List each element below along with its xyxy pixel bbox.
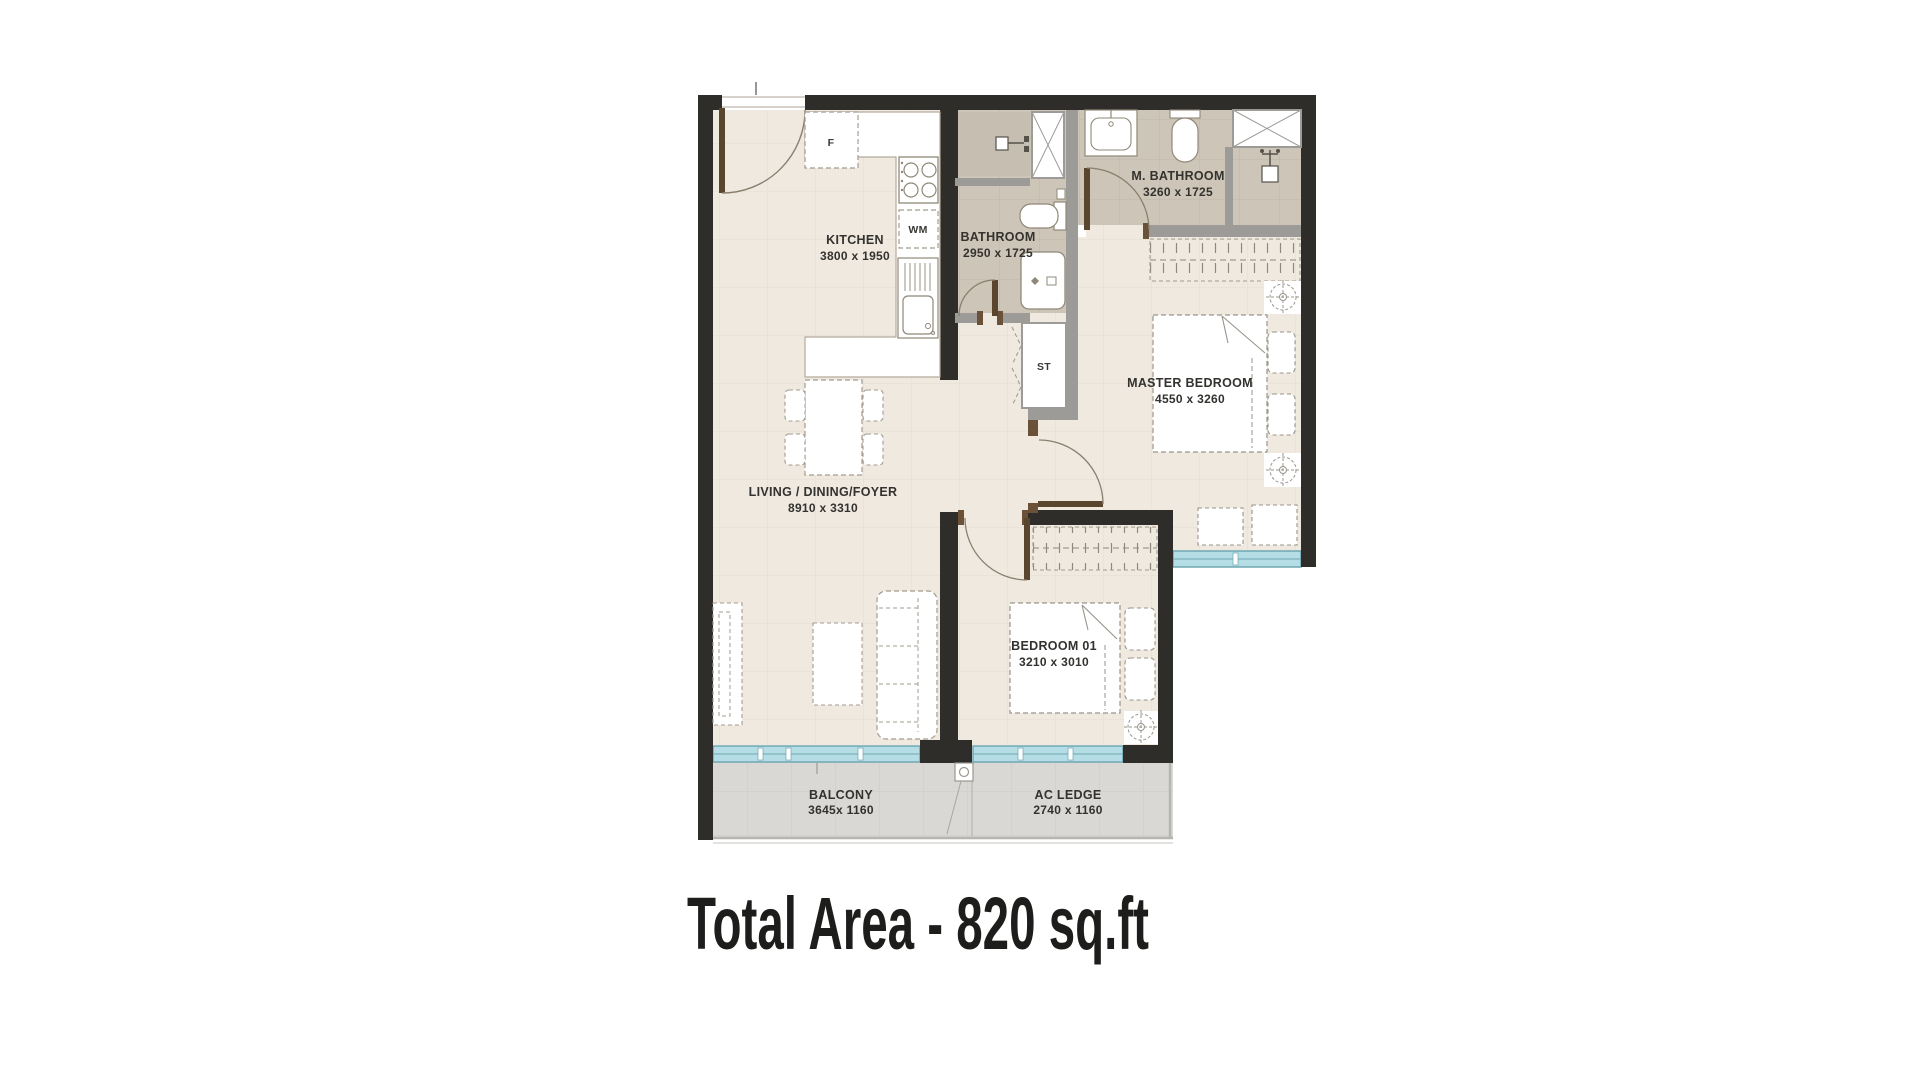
mbath-south-wall <box>1148 225 1301 237</box>
wardrobe-icon <box>1150 239 1300 281</box>
ceiling-fan-icon <box>1124 710 1158 744</box>
nightstand <box>1125 658 1155 700</box>
top-wall <box>805 95 1316 110</box>
basin-icon <box>1021 252 1065 309</box>
balcony-label: BALCONY <box>809 788 873 802</box>
shower-mixer-icon <box>1260 149 1280 182</box>
bedroom01-right-wall <box>1158 510 1173 763</box>
ottoman <box>1252 505 1297 545</box>
kitchen-bathroom-wall <box>940 110 958 380</box>
ceiling-fan-icon <box>1264 453 1301 487</box>
master-bedroom-window-icon <box>1173 551 1301 567</box>
mbath-shower-wall <box>1225 147 1233 225</box>
dining-chair <box>863 434 883 465</box>
corridor-floor-lower <box>958 420 1078 512</box>
sofa <box>877 591 937 739</box>
floor-areas <box>713 110 1301 838</box>
wardrobe-icon <box>1033 527 1157 570</box>
vanity-icon <box>1085 110 1137 156</box>
bathroom-label: BATHROOM <box>960 230 1035 244</box>
ceiling-fan-icon <box>1264 280 1301 314</box>
ac-ledge-corner-pillar <box>1123 745 1173 763</box>
bedroom01-dims: 3210 x 3010 <box>1019 655 1089 669</box>
living-window-icon <box>713 746 920 762</box>
tv-unit <box>713 603 742 725</box>
master-bathroom-dims: 3260 x 1725 <box>1143 185 1213 199</box>
living-label: LIVING / DINING/FOYER <box>749 485 898 499</box>
master-bath-threshold <box>1086 225 1143 237</box>
coffee-table <box>813 623 862 705</box>
living-corridor-opening-floor <box>940 380 958 512</box>
living-dims: 8910 x 3310 <box>788 501 858 515</box>
master-bathroom-label: M. BATHROOM <box>1131 169 1224 183</box>
shower-tray-icon <box>1032 112 1064 178</box>
master-bedroom-dims: 4550 x 3260 <box>1155 392 1225 406</box>
bedroom01-doorway-floor <box>958 512 1028 525</box>
bath-mbath-divider-wall <box>1066 110 1078 420</box>
floor-plan-page: KITCHEN 3800 x 1950 BATHROOM 2950 x 1725… <box>0 0 1920 1080</box>
floor-plan: KITCHEN 3800 x 1950 BATHROOM 2950 x 1725… <box>0 0 1920 1080</box>
kitchen-label: KITCHEN <box>826 233 884 247</box>
dining-chair <box>785 434 805 465</box>
washing-machine-label: WM <box>908 224 927 236</box>
nightstand <box>1268 394 1295 435</box>
master-bedroom-label: MASTER BEDROOM <box>1127 376 1253 390</box>
right-wall <box>1301 95 1316 567</box>
corridor-end-wall <box>1028 408 1078 420</box>
bedroom01-top-wall <box>1028 510 1173 525</box>
balcony-dims: 3645x 1160 <box>808 803 874 817</box>
bathroom-shower-zone <box>955 112 1030 176</box>
nightstand <box>1125 608 1155 650</box>
kitchen-dims: 3800 x 1950 <box>820 249 890 263</box>
dining-chair <box>863 390 883 421</box>
kitchen-sink-icon <box>898 258 938 338</box>
ottoman <box>1198 508 1243 545</box>
shower-tray-icon <box>1233 110 1301 147</box>
ac-ledge-label: AC LEDGE <box>1035 788 1102 802</box>
ac-ledge-dims: 2740 x 1160 <box>1033 803 1102 817</box>
total-area-title: Total Area - 820 sq.ft <box>687 882 1149 965</box>
bedroom01-window-icon <box>973 746 1123 762</box>
stove-icon <box>899 157 938 203</box>
bathroom-shower-curb <box>955 178 1030 186</box>
left-wall <box>698 95 713 840</box>
living-bedroom01-wall <box>940 512 958 745</box>
fridge-label: F <box>828 137 835 149</box>
dining-chair <box>785 390 805 421</box>
bathroom-south-wall-right <box>1003 313 1030 323</box>
nightstand <box>1268 332 1295 373</box>
dining-table <box>805 380 862 475</box>
bedroom01-label: BEDROOM 01 <box>1011 639 1097 653</box>
balcony-pillar <box>920 740 972 763</box>
storage-label: ST <box>1037 361 1051 373</box>
bathroom-dims: 2950 x 1725 <box>963 246 1033 260</box>
wall-hung-toilet-icon <box>1170 110 1200 162</box>
